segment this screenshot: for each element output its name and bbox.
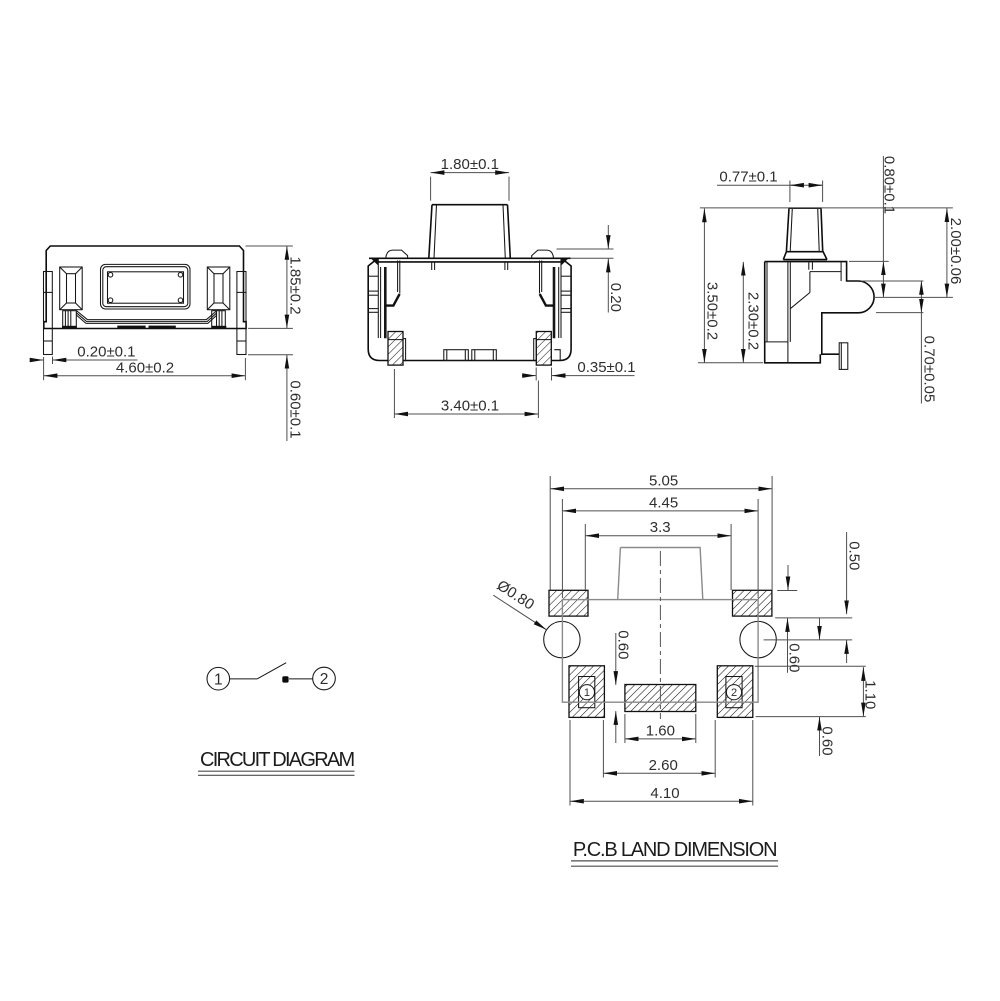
svg-text:1: 1 [214, 671, 223, 688]
svg-text:0.20: 0.20 [607, 283, 624, 312]
svg-text:P.C.B LAND DIMENSION: P.C.B LAND DIMENSION [573, 839, 776, 861]
svg-text:0.20±0.1: 0.20±0.1 [77, 344, 135, 361]
svg-text:0.60: 0.60 [615, 630, 632, 659]
svg-text:1.85±0.2: 1.85±0.2 [287, 256, 304, 314]
svg-text:1.80±0.1: 1.80±0.1 [441, 156, 499, 173]
svg-text:0.60±0.1: 0.60±0.1 [287, 380, 304, 438]
svg-text:0.70±0.05: 0.70±0.05 [920, 336, 937, 403]
svg-text:2.00±0.06: 2.00±0.06 [947, 218, 964, 285]
svg-text:0.50: 0.50 [845, 541, 862, 570]
svg-text:2.60: 2.60 [649, 757, 678, 774]
svg-text:3.40±0.1: 3.40±0.1 [441, 398, 499, 415]
svg-text:3.50±0.2: 3.50±0.2 [703, 282, 720, 340]
svg-text:5.05: 5.05 [649, 472, 678, 489]
svg-text:4.10: 4.10 [650, 785, 679, 802]
svg-text:2: 2 [320, 671, 329, 688]
svg-text:0.35±0.1: 0.35±0.1 [577, 359, 635, 376]
svg-text:2.30±0.2: 2.30±0.2 [745, 292, 762, 350]
svg-text:0.60: 0.60 [786, 643, 803, 672]
svg-text:4.45: 4.45 [649, 495, 678, 512]
svg-text:0.80±0.1: 0.80±0.1 [881, 156, 898, 214]
svg-text:1.60: 1.60 [646, 723, 675, 740]
svg-text:3.3: 3.3 [650, 519, 671, 536]
svg-text:4.60±0.2: 4.60±0.2 [116, 360, 174, 377]
svg-text:0.77±0.1: 0.77±0.1 [719, 169, 777, 186]
svg-text:CIRCUIT DIAGRAM: CIRCUIT DIAGRAM [200, 749, 354, 771]
svg-text:0.60: 0.60 [818, 726, 835, 755]
svg-text:2: 2 [731, 687, 737, 699]
svg-text:1.10: 1.10 [862, 680, 879, 709]
svg-text:1: 1 [584, 687, 590, 699]
